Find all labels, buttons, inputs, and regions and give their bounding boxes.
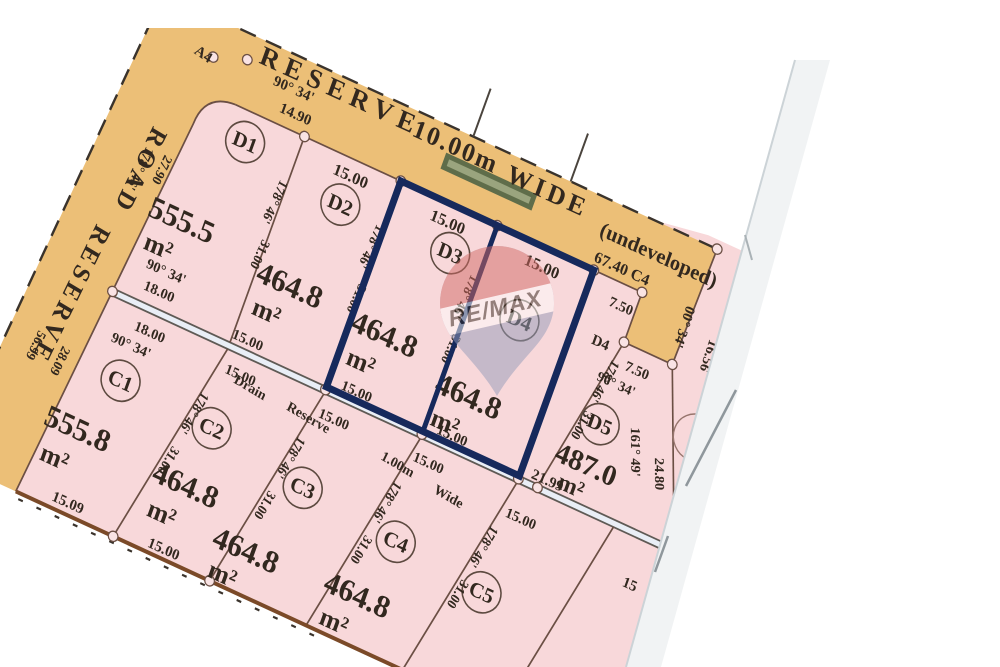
dim-d5-east: 24.80	[651, 457, 666, 490]
dim-d5-east-bearing: 161° 49'	[627, 427, 642, 477]
scanned-survey-plan: D1 D2 D3 D4 D5 C1 C2 C3 C4 C5 555.5 m² 4…	[0, 0, 1000, 667]
survey-plan-svg: D1 D2 D3 D4 D5 C1 C2 C3 C4 C5 555.5 m² 4…	[0, 0, 1000, 667]
page-top-margin	[0, 0, 1000, 28]
grid-tick-1	[473, 89, 490, 137]
grid-tick-2	[571, 134, 588, 182]
